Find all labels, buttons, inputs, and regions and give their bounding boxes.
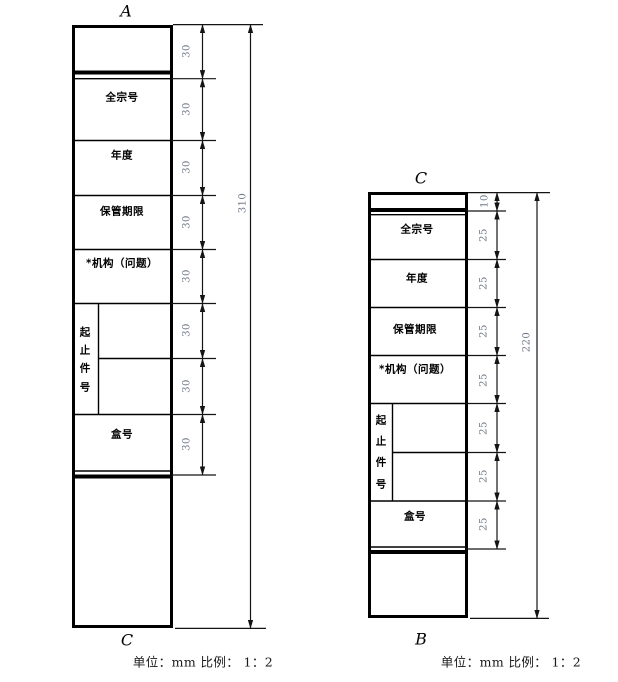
- right-spine-box: [370, 194, 467, 617]
- left-dim-30: 30: [182, 44, 193, 58]
- right-row-retention: 保管期限: [393, 322, 437, 337]
- right-dimension-lines: [466, 193, 550, 619]
- left-item-range-char: 起: [80, 325, 91, 340]
- right-row-org-issue: *机构（问题）: [379, 362, 451, 377]
- left-row-box-no: 盒号: [111, 427, 133, 442]
- left-item-range-char: 止: [80, 343, 91, 358]
- right-bottom-label: B: [415, 630, 427, 649]
- right-row-box-no: 盒号: [404, 509, 426, 524]
- left-dim-30: 30: [182, 102, 193, 116]
- left-top-label: A: [120, 2, 132, 21]
- right-dim-25: 25: [479, 276, 490, 290]
- right-item-range-char: 止: [376, 434, 387, 449]
- left-dim-30: 30: [182, 323, 193, 337]
- left-dim-30: 30: [182, 379, 193, 393]
- right-item-range-char: 号: [376, 477, 387, 492]
- right-dim-25: 25: [479, 228, 490, 242]
- right-item-range-char: 起: [376, 413, 387, 428]
- right-dim-25: 25: [479, 373, 490, 387]
- left-row-retention: 保管期限: [100, 204, 144, 219]
- left-row-year: 年度: [111, 148, 133, 163]
- right-dim-25: 25: [479, 517, 490, 531]
- left-bottom-label: C: [121, 631, 133, 650]
- right-scale-caption: 单位：mm 比例： 1：2: [441, 652, 581, 671]
- right-row-year: 年度: [406, 271, 428, 286]
- right-dim-10: 10: [480, 194, 491, 208]
- right-top-label: C: [415, 169, 427, 188]
- figure-canvas: A 全宗号 年度 保管期限 *机构（问题） 起 止 件 号 盒号 30 30 3…: [0, 0, 618, 682]
- left-item-range-char: 件: [80, 361, 91, 376]
- right-dim-25: 25: [479, 469, 490, 483]
- left-row-org-issue: *机构（问题）: [86, 256, 158, 271]
- right-row-fonds-no: 全宗号: [401, 222, 434, 237]
- left-dim-30: 30: [182, 160, 193, 174]
- left-scale-caption: 单位：mm 比例： 1：2: [133, 652, 273, 671]
- left-dim-30: 30: [182, 215, 193, 229]
- left-dim-total: 310: [238, 193, 249, 214]
- right-dim-25: 25: [479, 324, 490, 338]
- left-dim-30: 30: [182, 437, 193, 451]
- right-item-range-char: 件: [376, 455, 387, 470]
- right-dim-total: 220: [522, 332, 533, 353]
- left-row-fonds-no: 全宗号: [106, 90, 139, 105]
- left-dim-30: 30: [182, 269, 193, 283]
- right-dim-25: 25: [479, 421, 490, 435]
- left-item-range-char: 号: [80, 380, 91, 395]
